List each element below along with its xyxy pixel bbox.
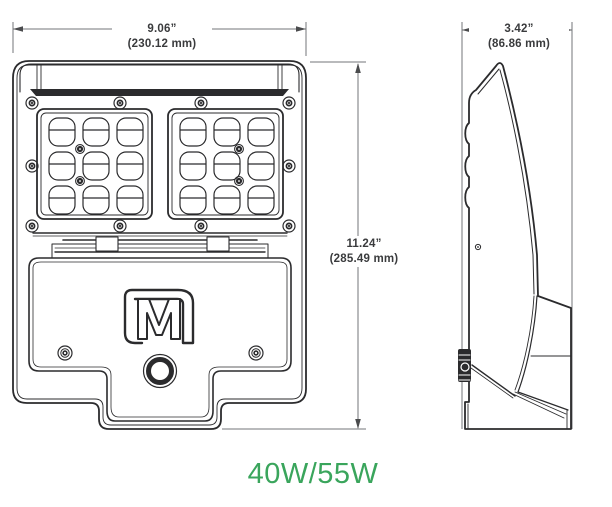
hinge-assembly (33, 233, 287, 258)
width-mm-text: (230.12 mm) (114, 37, 210, 52)
access-door (29, 258, 291, 421)
side-view-drawing (458, 63, 571, 429)
technical-drawing (0, 0, 612, 507)
led-module-left (37, 109, 152, 219)
front-housing-outline (13, 61, 306, 429)
spec-sheet-drawing: 9.06” (230.12 mm) 11.24” (285.49 mm) 3.4… (0, 0, 612, 507)
led-module-right (168, 109, 283, 219)
knockout-plug (144, 355, 177, 388)
depth-dimension (462, 22, 572, 429)
width-inches-text: 9.06” (114, 22, 210, 37)
height-inches-text: 11.24” (316, 237, 412, 252)
depth-inches-text: 3.42” (471, 22, 567, 37)
side-latch (458, 349, 471, 382)
height-dimension-label: 11.24” (285.49 mm) (314, 236, 414, 267)
depth-mm-text: (86.86 mm) (471, 37, 567, 52)
top-visor (20, 64, 299, 96)
wattage-label: 40W/55W (213, 458, 413, 491)
front-view-drawing (13, 61, 306, 429)
side-pin-detail (475, 244, 480, 249)
dimension-lines (13, 22, 572, 429)
height-mm-text: (285.49 mm) (316, 252, 412, 267)
width-dimension-label: 9.06” (230.12 mm) (112, 21, 212, 52)
depth-dimension-label: 3.42” (86.86 mm) (469, 21, 569, 52)
m-logo-icon (125, 290, 193, 343)
